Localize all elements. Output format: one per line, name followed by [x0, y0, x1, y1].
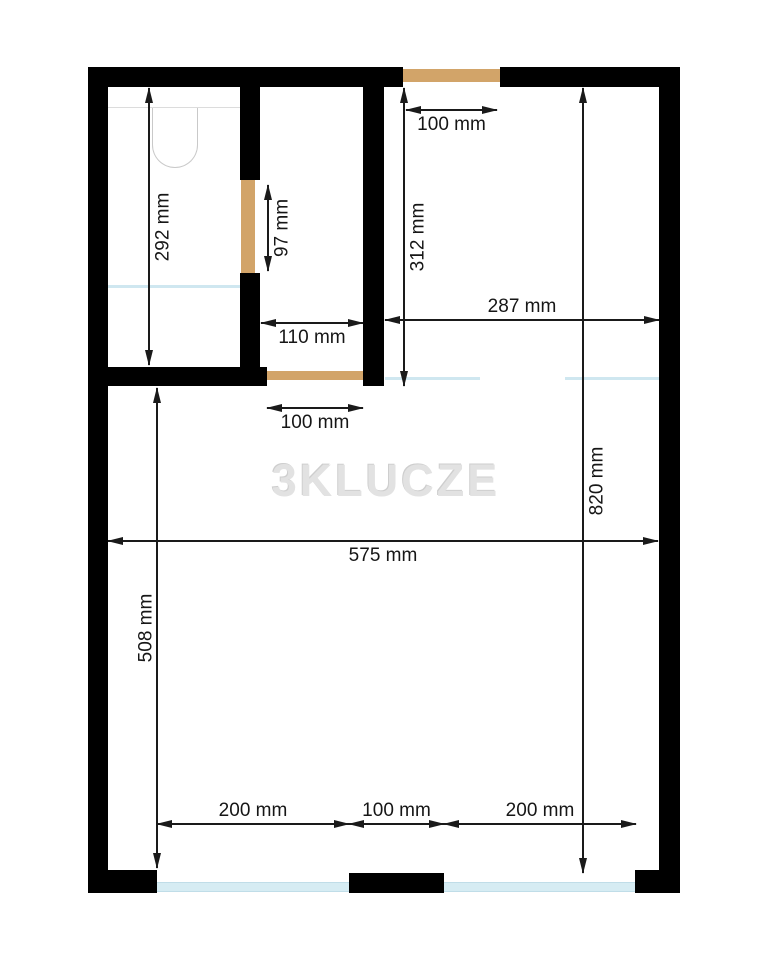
dim-top-door: 100 mm [406, 109, 497, 111]
window-bottom-left [157, 882, 349, 892]
dim-room-tr-width-label: 287 mm [488, 297, 557, 316]
wall-interior-horizontal [88, 367, 267, 386]
dim-window-right-label: 200 mm [506, 801, 575, 820]
bathroom-partition-line [108, 285, 240, 288]
dim-top-door-label: 100 mm [417, 115, 486, 134]
watermark-logo: 3KLUCZE [272, 455, 501, 507]
dim-bathroom-door-label: 97 mm [273, 199, 292, 257]
floor-plan: 3KLUCZE 100 mm 312 mm 287 mm 820 mm 292 … [0, 0, 768, 960]
dim-living-height-left: 508 mm [156, 388, 158, 868]
partition-line-right [565, 377, 659, 380]
dim-window-right: 200 mm [444, 823, 636, 825]
dim-bathroom-door: 97 mm [267, 185, 269, 271]
dim-bathroom-height-label: 292 mm [154, 192, 173, 261]
wall-bottom-left-block [88, 870, 157, 893]
dim-room-tr-height: 312 mm [403, 88, 405, 386]
wall-bathroom-lower [240, 273, 260, 367]
wall-bottom-pier [349, 873, 444, 893]
dim-room-tr-width: 287 mm [385, 319, 659, 321]
wall-right [659, 67, 680, 893]
dim-inner-height: 820 mm [582, 88, 584, 873]
door-top-entry [403, 69, 500, 82]
dim-hallway-door-label: 100 mm [281, 413, 350, 432]
dim-window-pier: 100 mm [349, 823, 444, 825]
door-hallway [267, 371, 363, 380]
dim-inner-height-label: 820 mm [588, 446, 607, 515]
dim-room-tr-height-label: 312 mm [409, 203, 428, 272]
wall-left [88, 67, 108, 893]
dim-window-left-label: 200 mm [219, 801, 288, 820]
wall-bottom-right-block [635, 870, 680, 893]
window-bottom-right [444, 882, 635, 892]
dim-hallway-width: 110 mm [261, 322, 363, 324]
wall-interior-vertical [363, 87, 384, 386]
dim-hallway-width-label: 110 mm [278, 328, 345, 347]
toilet-fixture [152, 108, 198, 168]
wall-top-left [88, 67, 403, 87]
wall-top-right [500, 67, 680, 87]
dim-living-width-label: 575 mm [349, 546, 418, 565]
dim-bathroom-height: 292 mm [148, 88, 150, 365]
wall-bathroom-upper [240, 87, 260, 180]
dim-living-height-left-label: 508 mm [137, 594, 156, 663]
dim-window-left: 200 mm [157, 823, 349, 825]
dim-window-pier-label: 100 mm [362, 801, 431, 820]
dim-hallway-door: 100 mm [267, 407, 363, 409]
dim-living-width: 575 mm [108, 540, 658, 542]
door-bathroom [241, 180, 255, 273]
